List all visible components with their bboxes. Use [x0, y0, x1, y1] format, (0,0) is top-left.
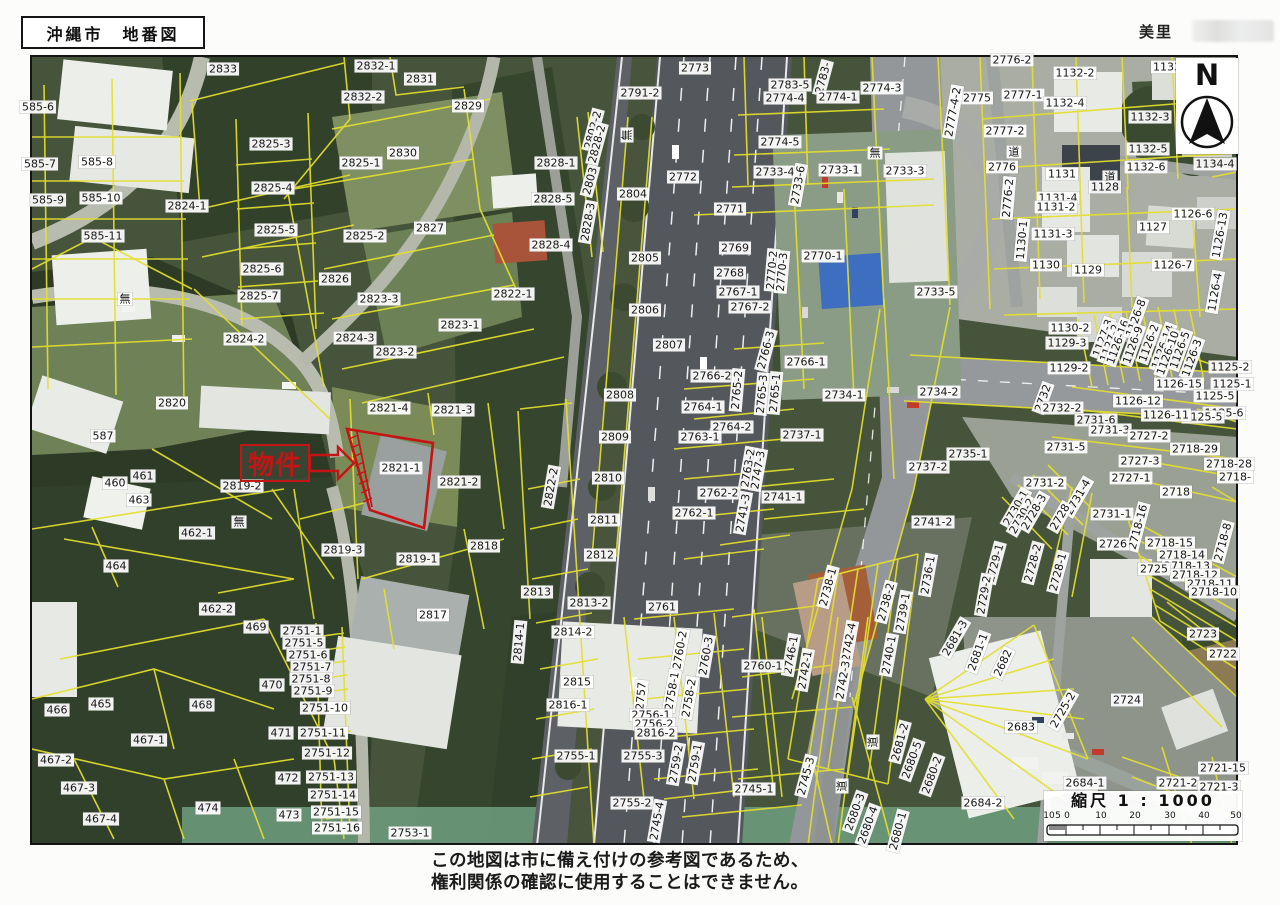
compass-icon	[1179, 92, 1235, 150]
scale-ruler: 10501020304050	[1046, 811, 1240, 839]
north-label: N	[1195, 58, 1219, 92]
scale-tick-label: 5	[1055, 811, 1061, 821]
redacted-text-blur	[1192, 20, 1274, 42]
property-callout: 物件	[240, 444, 310, 482]
scale-tick-label: 20	[1129, 811, 1140, 821]
scale-tick-label: 10	[1043, 811, 1054, 821]
scale-title: 縮尺 1 : 1000	[1044, 791, 1242, 811]
scale-tick-label: 50	[1230, 811, 1241, 821]
cadastral-map-page: { "header": { "title": "沖縄市 地番図", "area_…	[0, 0, 1280, 905]
scale-ruler-graphic	[1046, 822, 1240, 838]
scale-tick-label: 30	[1164, 811, 1175, 821]
scale-tick-label: 10	[1095, 811, 1106, 821]
aerial-photo	[32, 57, 1237, 845]
scale-bar: 縮尺 1 : 1000 10501020304050	[1044, 791, 1242, 841]
map-title-box: 沖縄市 地番図	[21, 16, 205, 49]
disclaimer-line-2: 権利関係の確認に使用することはできません。	[431, 872, 809, 894]
scale-tick-label: 0	[1064, 811, 1070, 821]
disclaimer-line-1: この地図は市に備え付けの参考図であるため、	[431, 850, 809, 872]
property-label: 物件	[248, 445, 302, 482]
map-title: 沖縄市 地番図	[46, 21, 179, 45]
area-label: 美里	[1139, 21, 1173, 42]
disclaimer: この地図は市に備え付けの参考図であるため、 権利関係の確認に使用することはできま…	[431, 850, 809, 894]
scale-tick-label: 40	[1198, 811, 1209, 821]
map-frame	[30, 55, 1238, 845]
north-arrow: N	[1176, 58, 1238, 154]
